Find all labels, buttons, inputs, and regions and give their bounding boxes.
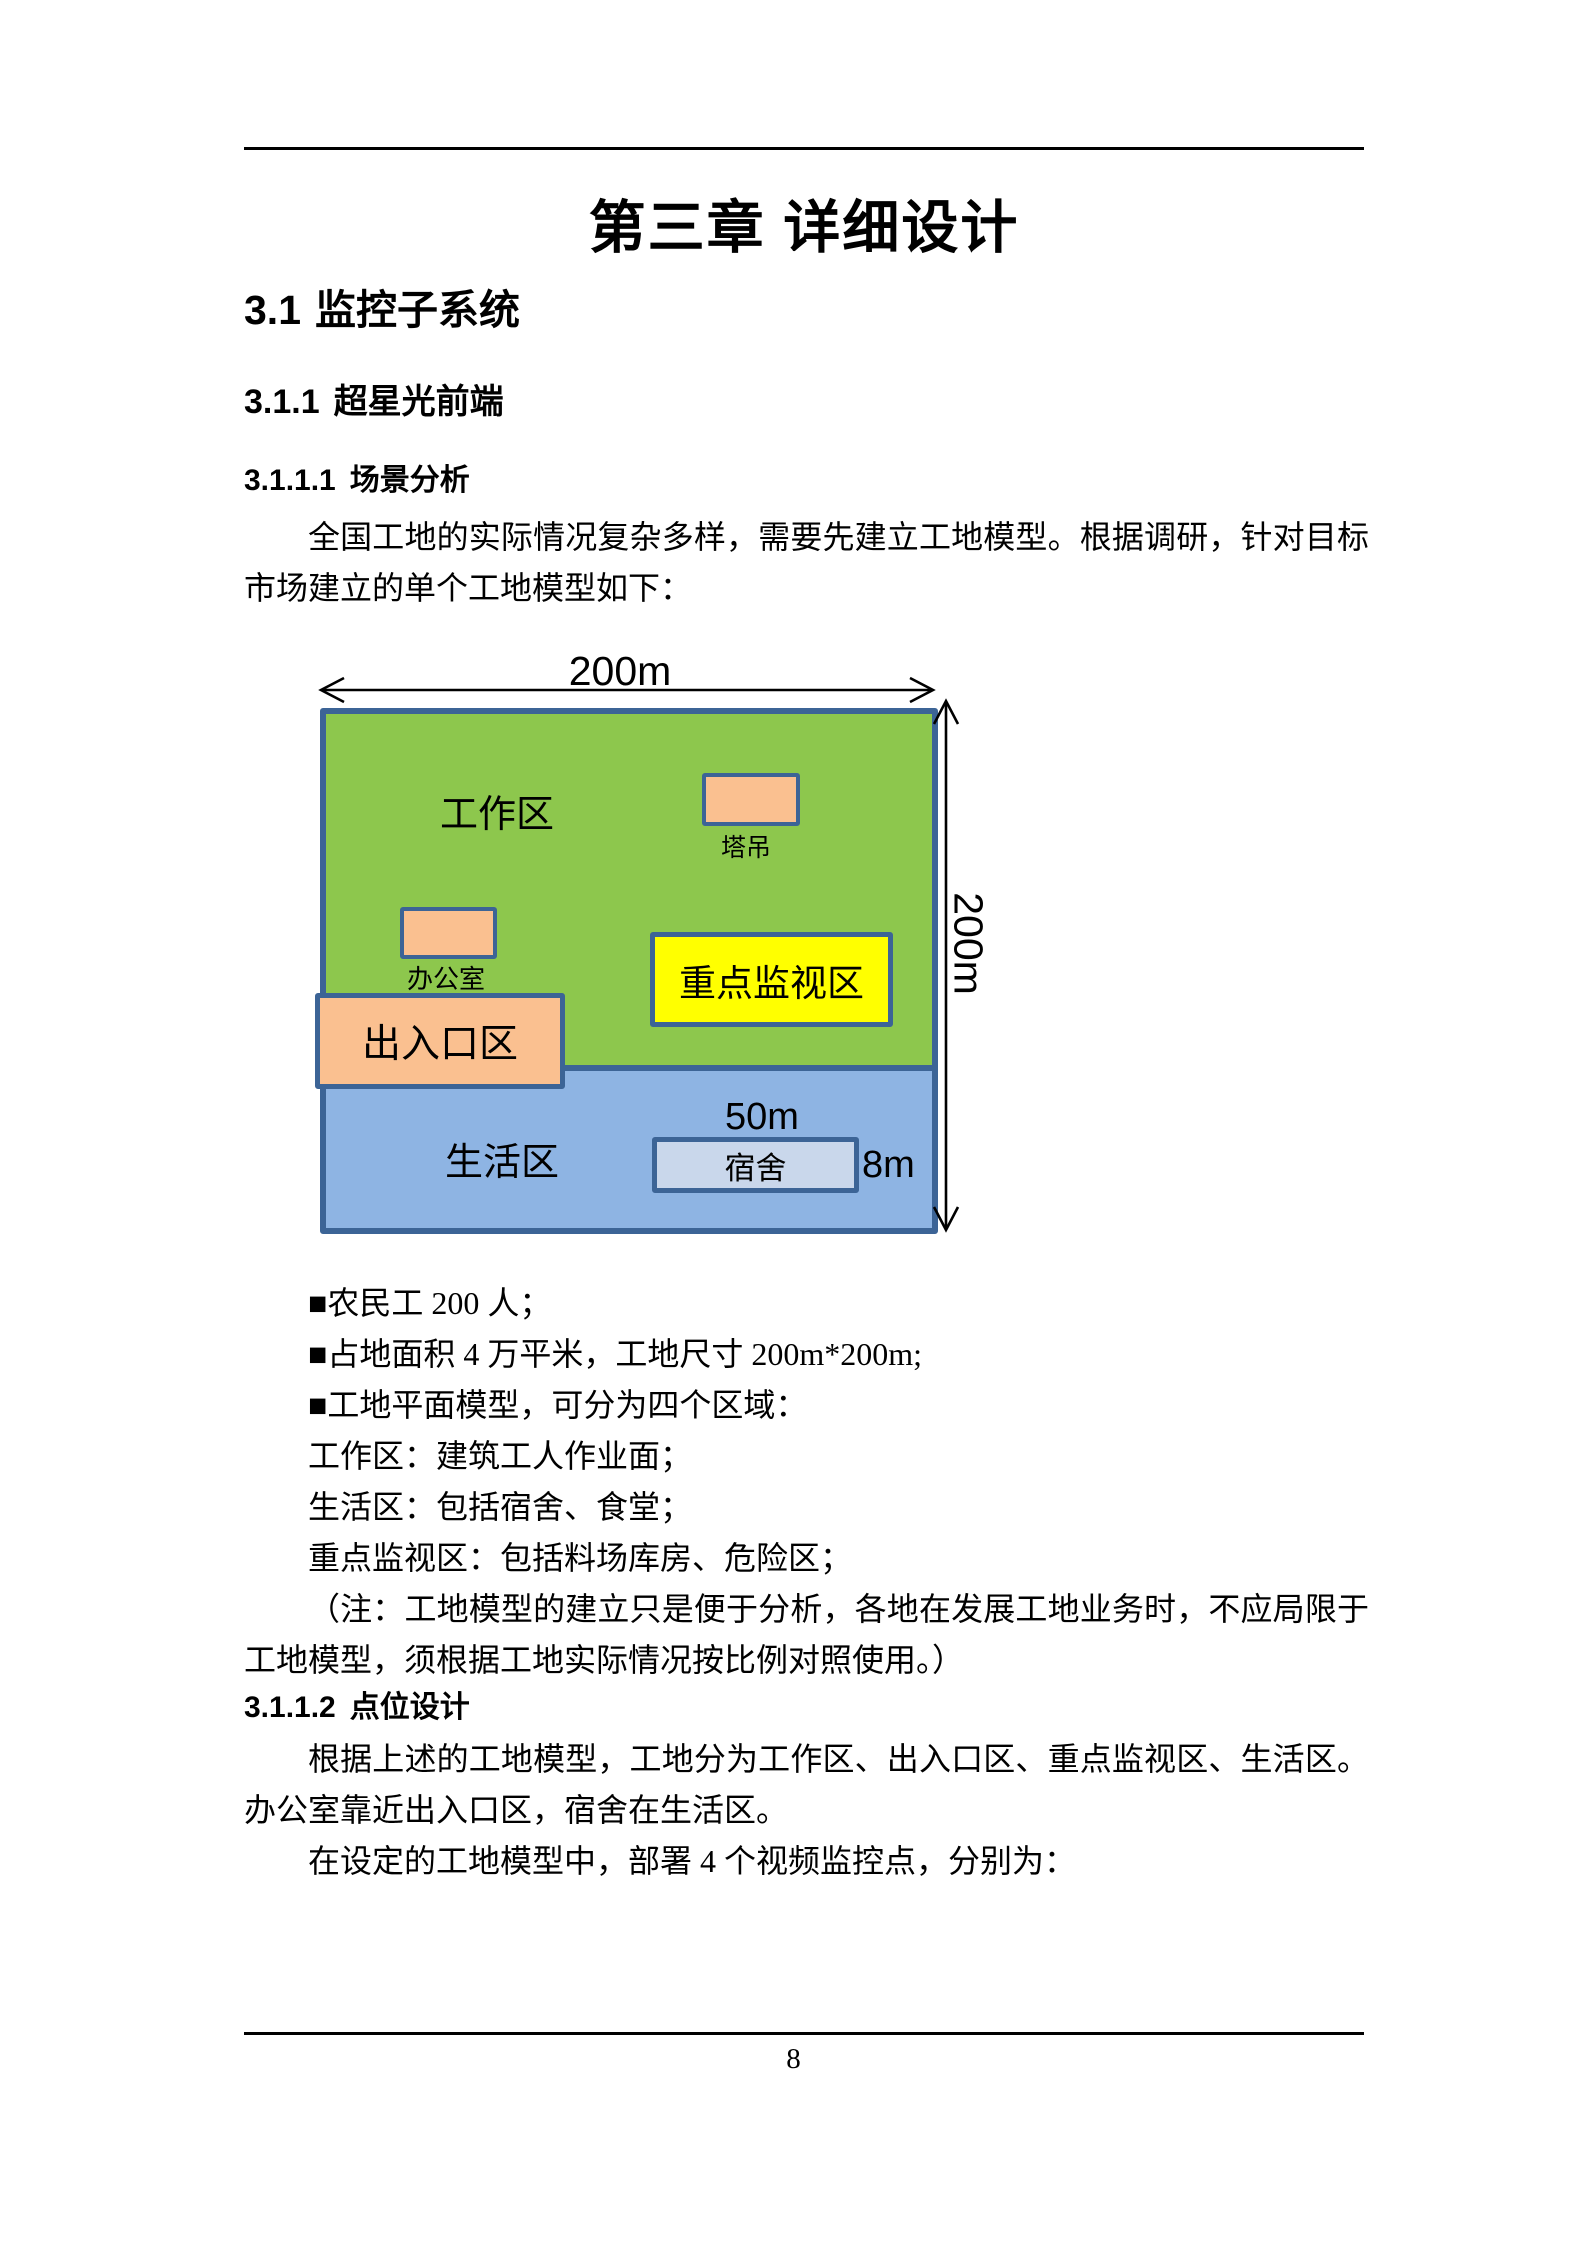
tower-crane-label: 塔吊 (666, 828, 826, 864)
document-page: 第三章 详细设计 3.1监控子系统 3.1.1超星光前端 3.1.1.1场景分析… (0, 0, 1587, 2245)
dormitory-label: 宿舍 (725, 1143, 787, 1188)
site-model-diagram: 重点监视区 出入口区 宿舍 200m 200m 工作区 塔吊 办公室 生活区 5… (0, 0, 1587, 2245)
heading-text: 监控子系统 (315, 287, 520, 333)
heading-number: 3.1.1.1 (244, 464, 336, 497)
heading-number: 3.1.1.2 (244, 1691, 336, 1724)
list-item: ■占地面积 4 万平米，工地尺寸 200m*200m; (308, 1329, 1378, 1380)
dorm-height-dimension-label: 8m (862, 1144, 952, 1187)
dormitory-box: 宿舍 (652, 1137, 859, 1193)
work-zone-box (320, 708, 938, 1071)
heading-text: 点位设计 (350, 1691, 470, 1724)
point-design-paragraph-2: 在设定的工地模型中，部署 4 个视频监控点，分别为： (244, 1836, 1369, 1887)
intro-paragraph: 全国工地的实际情况复杂多样，需要先建立工地模型。根据调研，针对目标市场建立的单个… (244, 512, 1369, 614)
heading-text: 超星光前端 (334, 384, 504, 421)
entrance-zone-box: 出入口区 (315, 993, 565, 1089)
site-width-dimension-label: 200m (560, 648, 680, 695)
work-zone-label: 工作区 (397, 783, 597, 838)
list-item: ■农民工 200 人； (308, 1278, 1378, 1329)
office-box (400, 907, 497, 959)
height-arrow (934, 701, 958, 1230)
site-facts-list: ■农民工 200 人； ■占地面积 4 万平米，工地尺寸 200m*200m; … (308, 1278, 1378, 1584)
dorm-width-dimension-label: 50m (702, 1096, 822, 1139)
dimension-arrows (0, 0, 1587, 2245)
heading-3-1-1: 3.1.1超星光前端 (244, 380, 504, 425)
living-zone-box (320, 1065, 938, 1234)
page-number: 8 (0, 2040, 1587, 2078)
list-item: 生活区：包括宿舍、食堂； (308, 1482, 1378, 1533)
heading-3-1-1-1-scene-analysis: 3.1.1.1场景分析 (244, 461, 470, 501)
key-surveillance-zone-box: 重点监视区 (650, 932, 893, 1027)
office-label: 办公室 (366, 959, 526, 996)
living-zone-label: 生活区 (402, 1131, 602, 1186)
list-item: 重点监视区：包括料场库房、危险区； (308, 1533, 1378, 1584)
heading-3-1: 3.1监控子系统 (244, 284, 520, 336)
key-surveillance-zone-label: 重点监视区 (679, 953, 864, 1007)
heading-number: 3.1 (244, 287, 301, 333)
heading-3-1-1-2-point-design: 3.1.1.2点位设计 (244, 1688, 470, 1728)
chapter-title: 第三章 详细设计 (244, 193, 1364, 263)
width-arrow (321, 678, 933, 702)
tower-crane-box (702, 773, 800, 826)
point-design-paragraph-1: 根据上述的工地模型，工地分为工作区、出入口区、重点监视区、生活区。办公室靠近出入… (244, 1734, 1369, 1836)
list-item: 工作区：建筑工人作业面； (308, 1431, 1378, 1482)
header-rule (244, 147, 1364, 150)
note-paragraph: （注：工地模型的建立只是便于分析，各地在发展工地业务时，不应局限于工地模型，须根… (244, 1584, 1369, 1686)
footer-rule (244, 2032, 1364, 2035)
site-height-dimension-label: 200m (945, 874, 992, 1014)
entrance-zone-label: 出入口区 (362, 1013, 518, 1069)
list-item: ■工地平面模型，可分为四个区域： (308, 1380, 1378, 1431)
heading-number: 3.1.1 (244, 383, 320, 421)
heading-text: 场景分析 (350, 464, 470, 497)
